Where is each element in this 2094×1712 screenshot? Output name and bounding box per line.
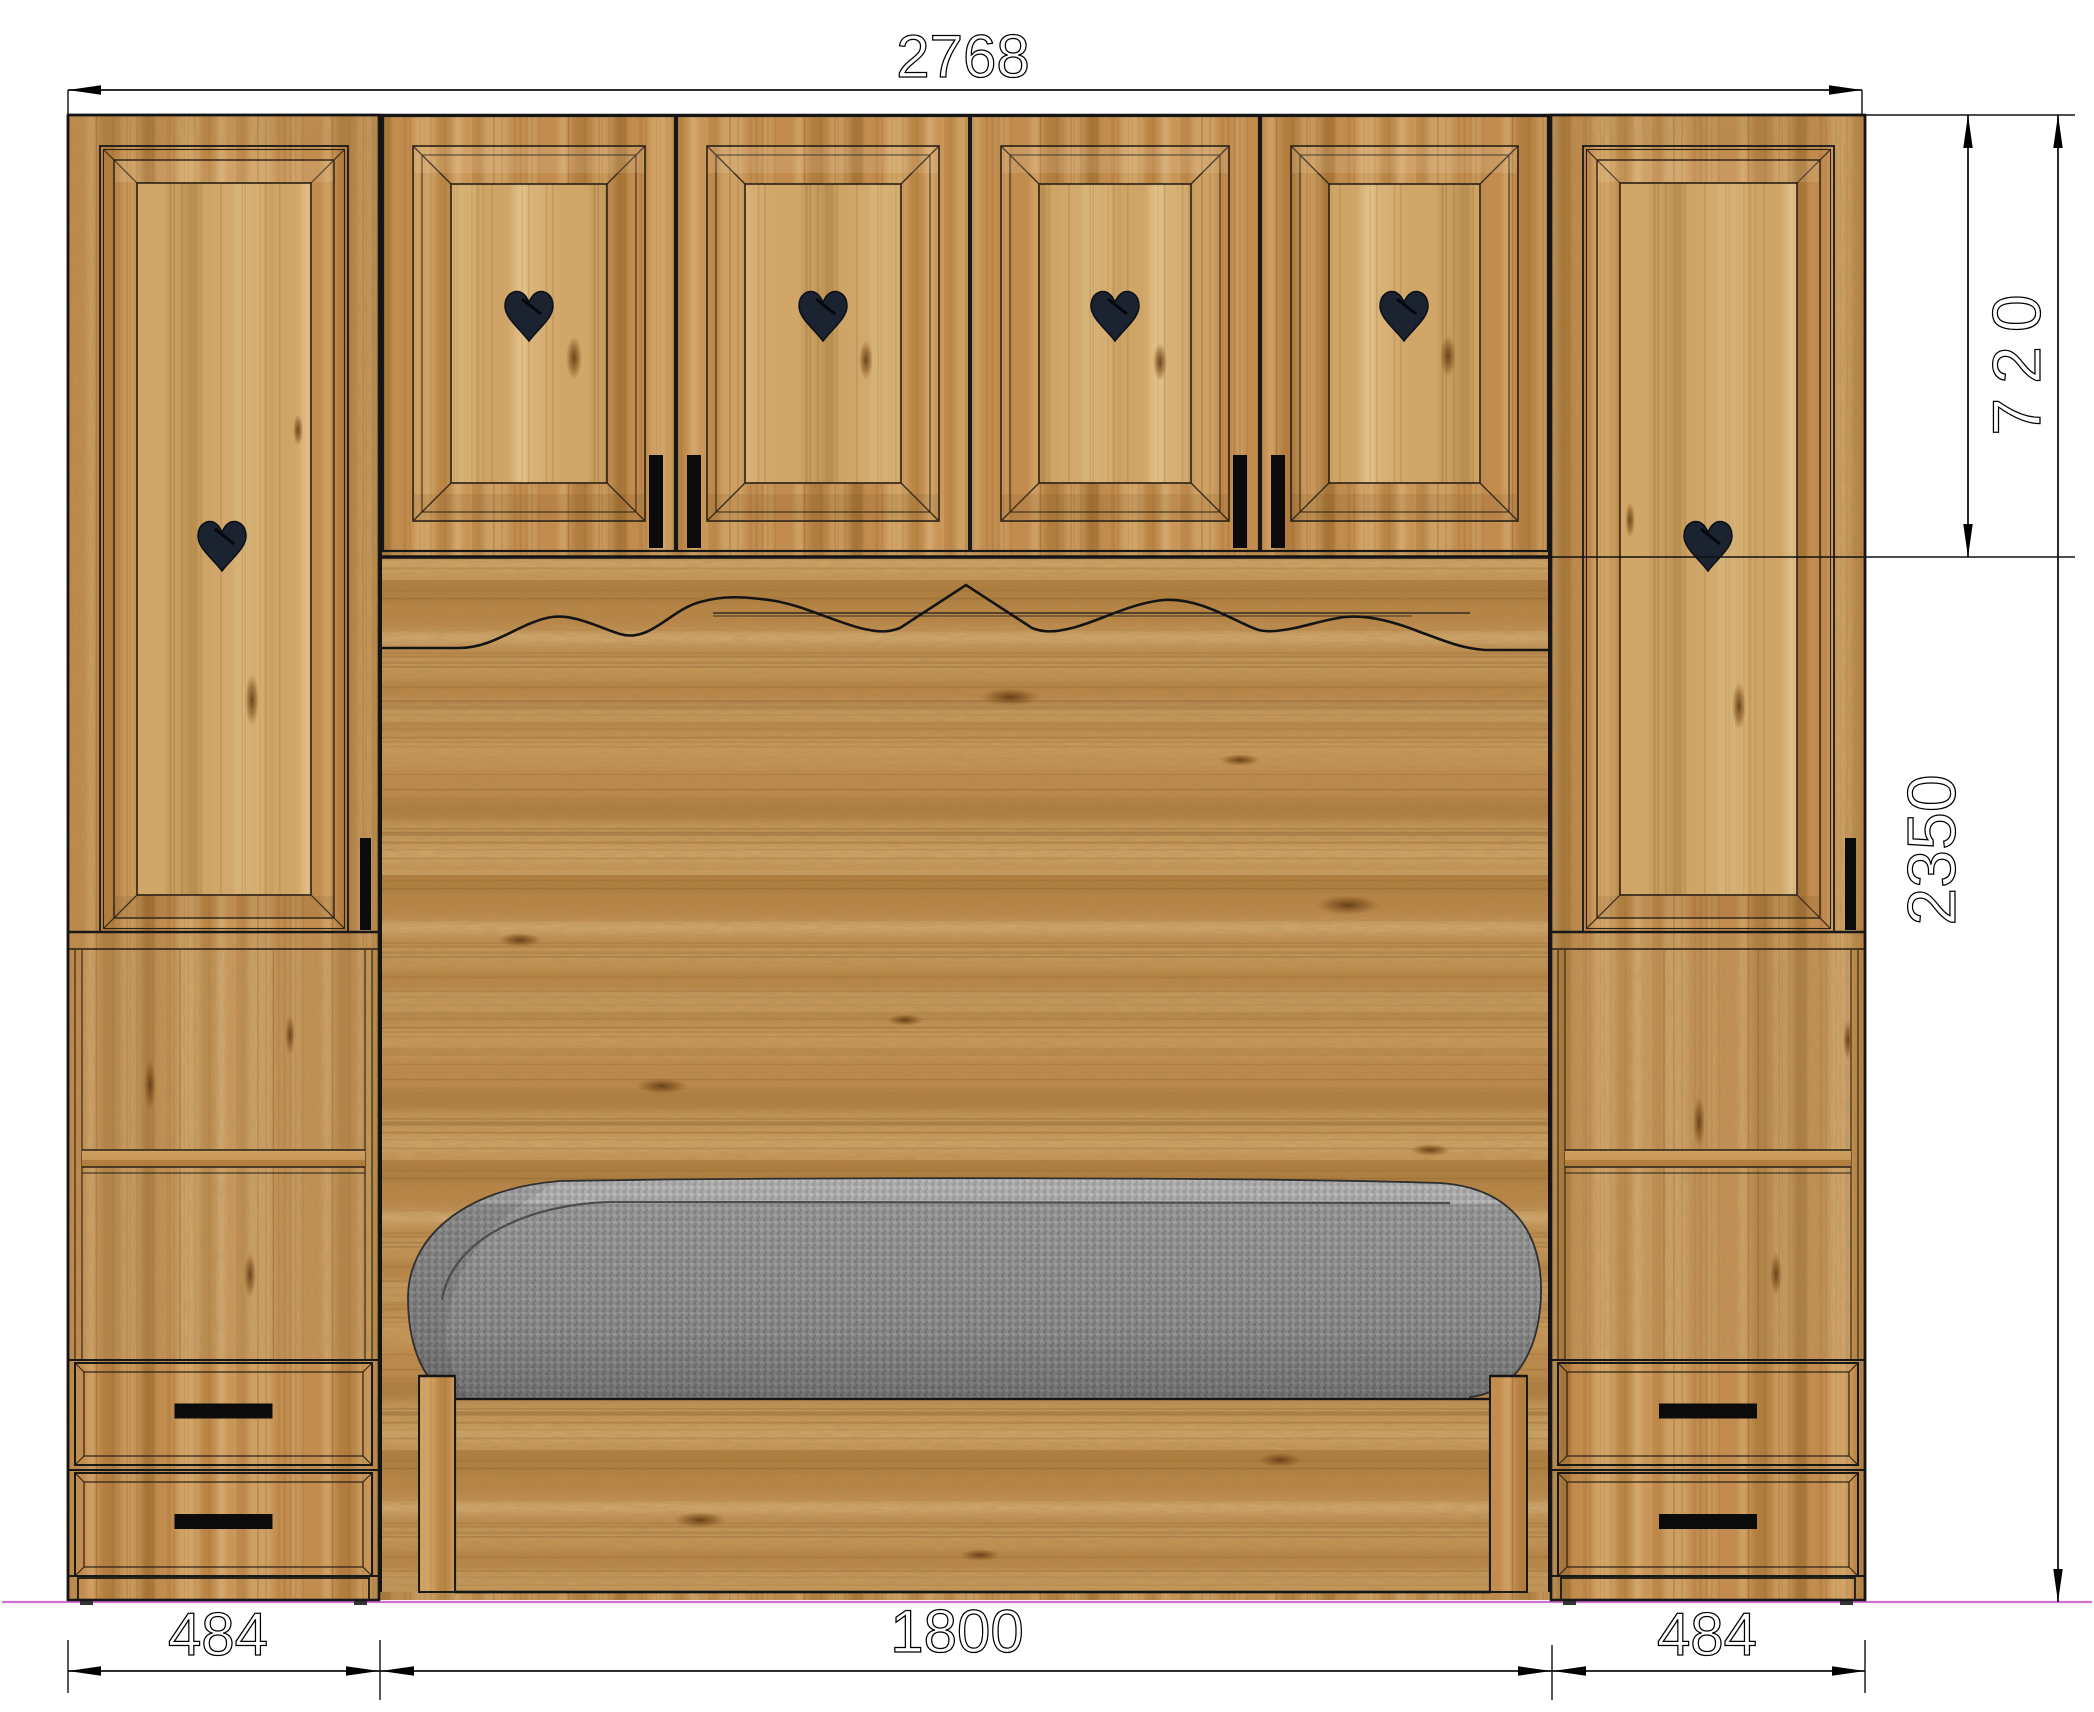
svg-text:2768: 2768: [896, 23, 1029, 90]
svg-text:1800: 1800: [890, 1598, 1023, 1665]
svg-text:720: 720: [1979, 280, 2055, 435]
svg-text:2350: 2350: [1894, 774, 1970, 925]
svg-text:484: 484: [168, 1601, 268, 1668]
svg-text:484: 484: [1657, 1601, 1757, 1668]
